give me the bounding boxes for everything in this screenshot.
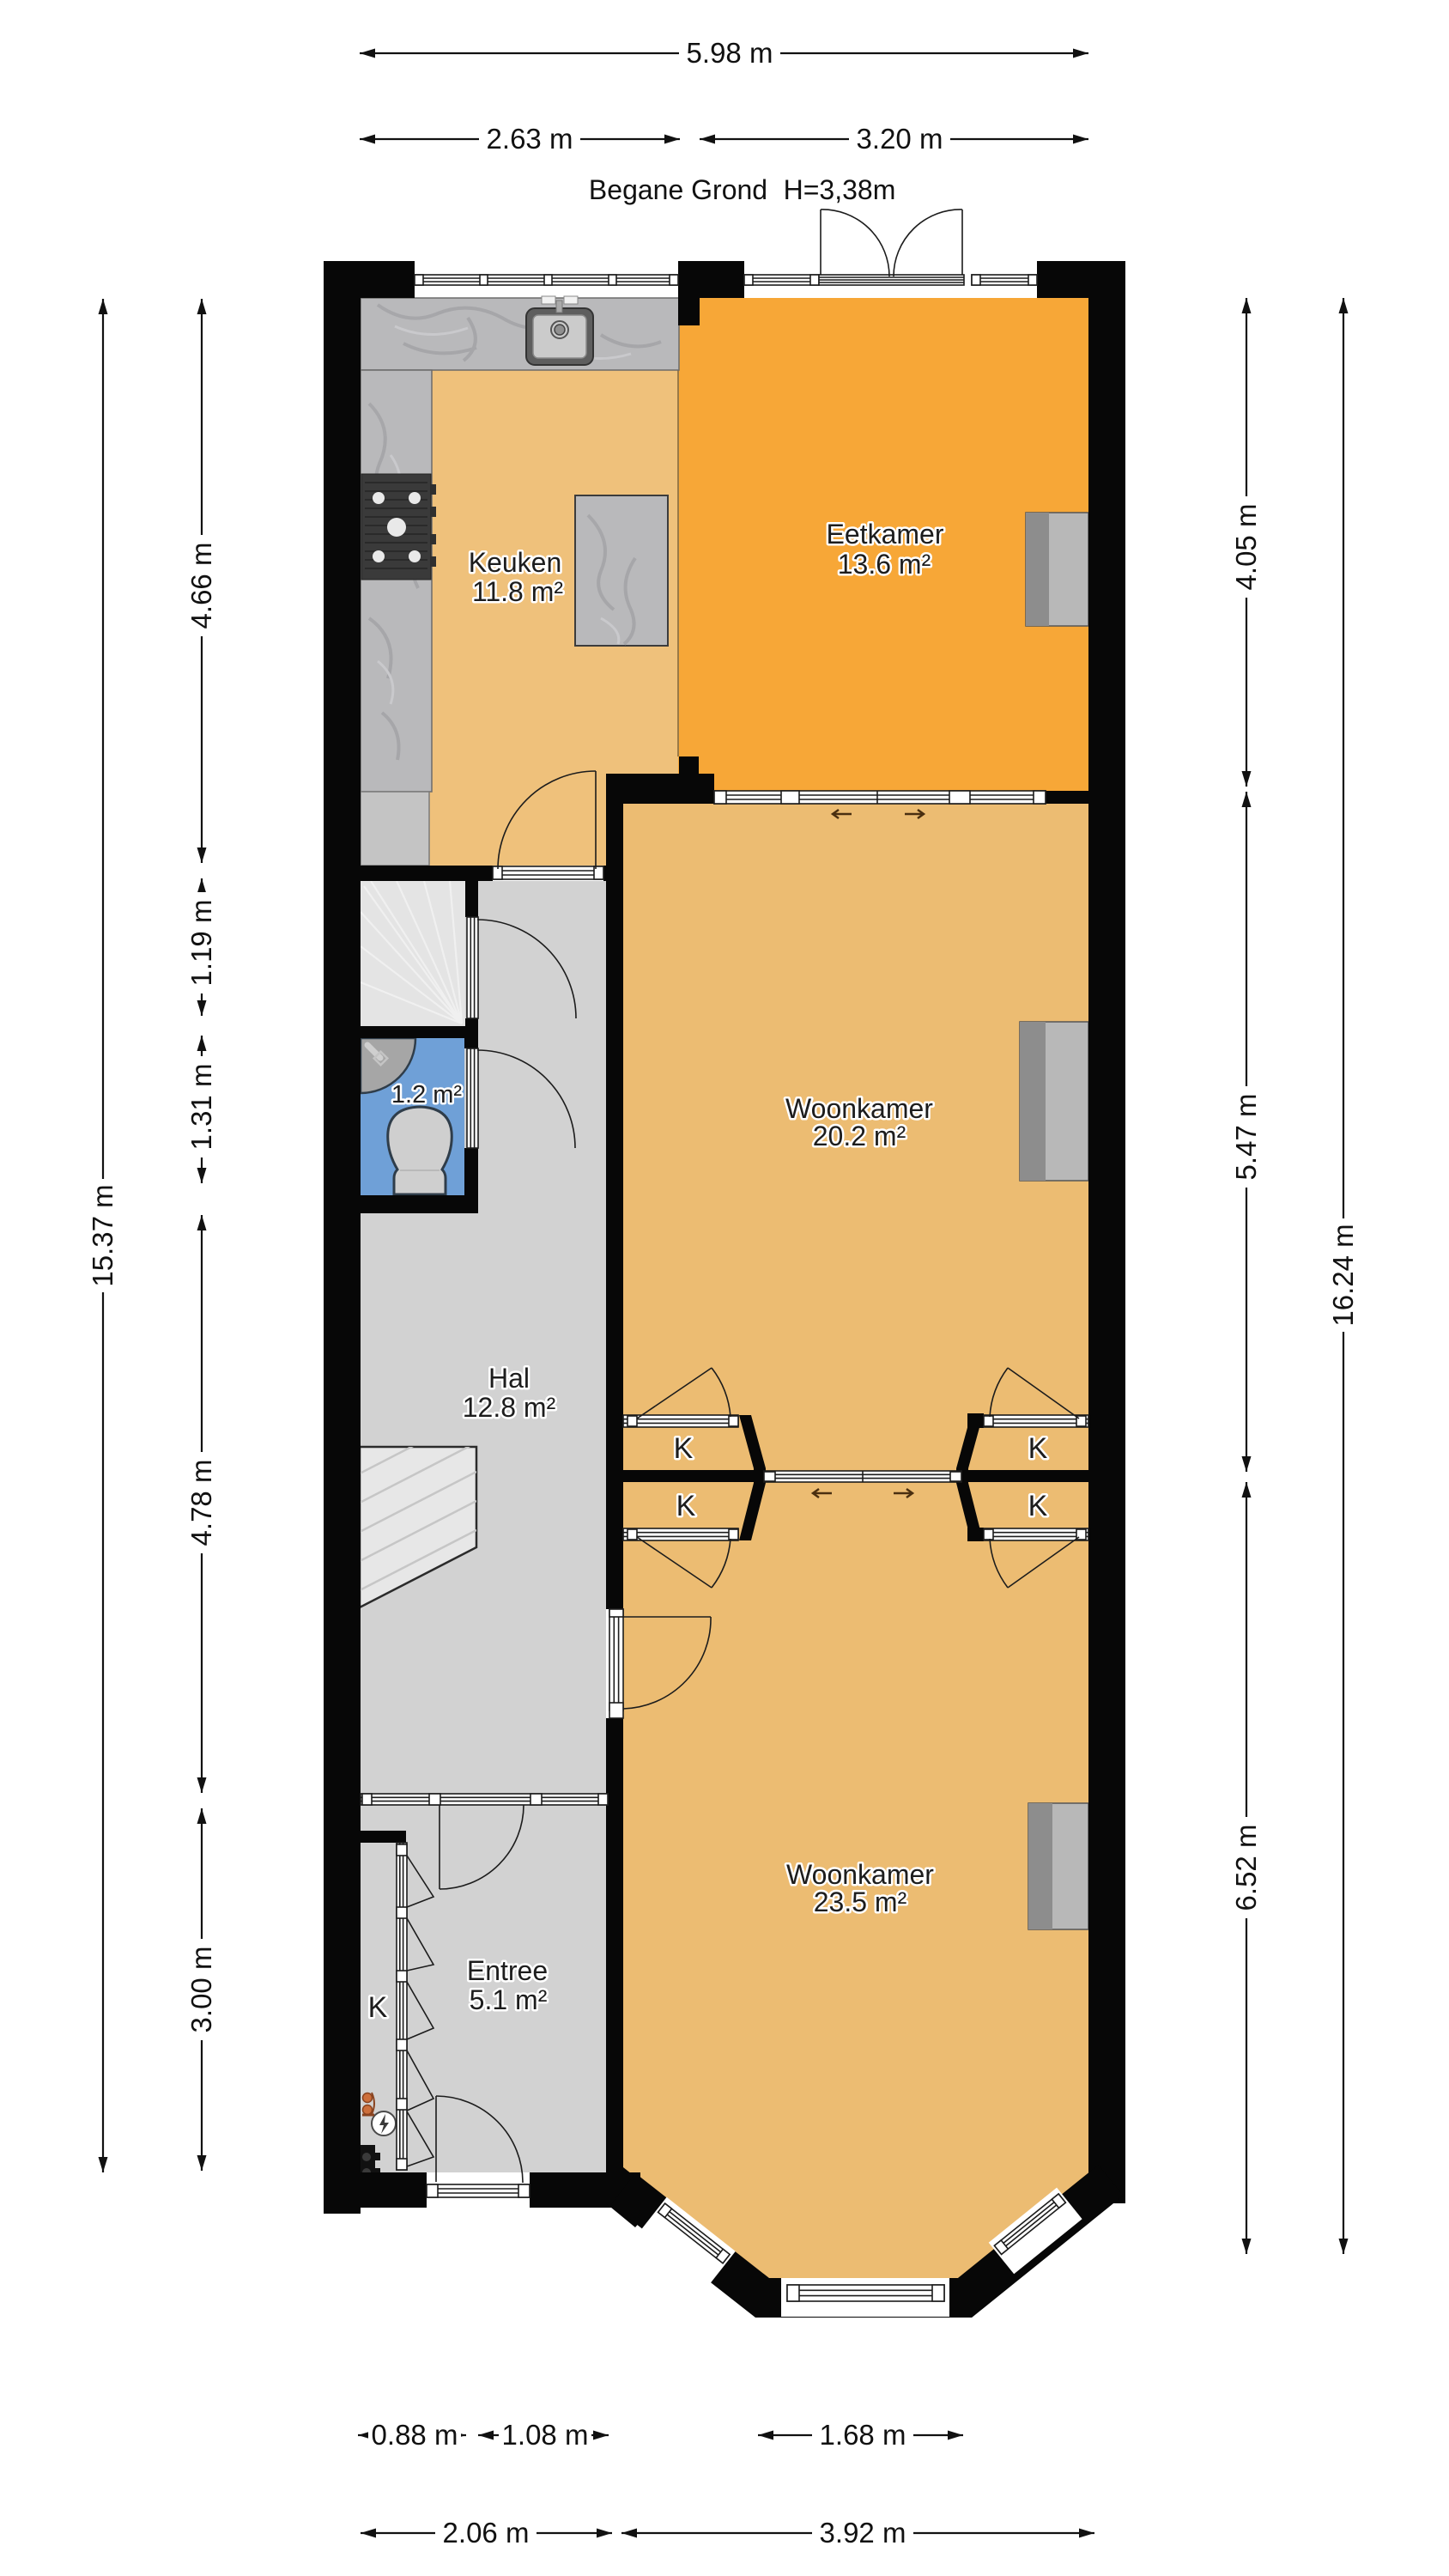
svg-text:12.8 m²: 12.8 m² (463, 1392, 556, 1423)
svg-text:1.2 m²: 1.2 m² (391, 1081, 463, 1109)
svg-text:K: K (1028, 1432, 1048, 1465)
svg-text:K: K (368, 1991, 388, 2024)
svg-text:11.8 m²: 11.8 m² (472, 576, 563, 607)
svg-text:0.88 m: 0.88 m (372, 2419, 458, 2451)
svg-text:H=3,38m: H=3,38m (784, 174, 896, 205)
svg-text:K: K (674, 1432, 694, 1465)
svg-text:Entree: Entree (467, 1955, 548, 1986)
svg-text:13.6 m²: 13.6 m² (838, 549, 931, 580)
svg-text:3.20 m: 3.20 m (857, 123, 943, 155)
svg-text:23.5 m²: 23.5 m² (814, 1886, 907, 1917)
svg-text:4.78 m: 4.78 m (185, 1460, 217, 1546)
svg-text:1.31 m: 1.31 m (185, 1064, 217, 1151)
svg-text:16.24 m: 16.24 m (1327, 1224, 1359, 1326)
svg-text:Keuken: Keuken (469, 547, 562, 578)
svg-text:15.37 m: 15.37 m (87, 1184, 118, 1286)
svg-text:2.06 m: 2.06 m (443, 2517, 530, 2549)
svg-text:5.1 m²: 5.1 m² (470, 1984, 548, 2015)
svg-text:Eetkamer: Eetkamer (827, 519, 944, 550)
svg-text:K: K (1028, 1490, 1048, 1522)
svg-text:20.2 m²: 20.2 m² (813, 1121, 906, 1151)
svg-text:Woonkamer: Woonkamer (785, 1093, 933, 1124)
svg-text:3.92 m: 3.92 m (820, 2517, 906, 2549)
svg-text:3.00 m: 3.00 m (185, 1947, 217, 2033)
svg-text:4.05 m: 4.05 m (1230, 504, 1262, 591)
svg-text:Begane Grond: Begane Grond (589, 174, 767, 205)
svg-text:2.63 m: 2.63 m (487, 123, 573, 155)
svg-text:1.08 m: 1.08 m (502, 2419, 589, 2451)
svg-text:Hal: Hal (488, 1363, 530, 1394)
svg-text:5.47 m: 5.47 m (1230, 1094, 1262, 1181)
svg-text:4.66 m: 4.66 m (185, 543, 217, 629)
svg-text:5.98 m: 5.98 m (687, 37, 773, 69)
svg-text:K: K (676, 1490, 696, 1522)
svg-text:6.52 m: 6.52 m (1230, 1825, 1262, 1911)
svg-text:Woonkamer: Woonkamer (786, 1859, 934, 1890)
svg-text:1.19 m: 1.19 m (185, 900, 217, 987)
svg-text:1.68 m: 1.68 m (820, 2419, 906, 2451)
